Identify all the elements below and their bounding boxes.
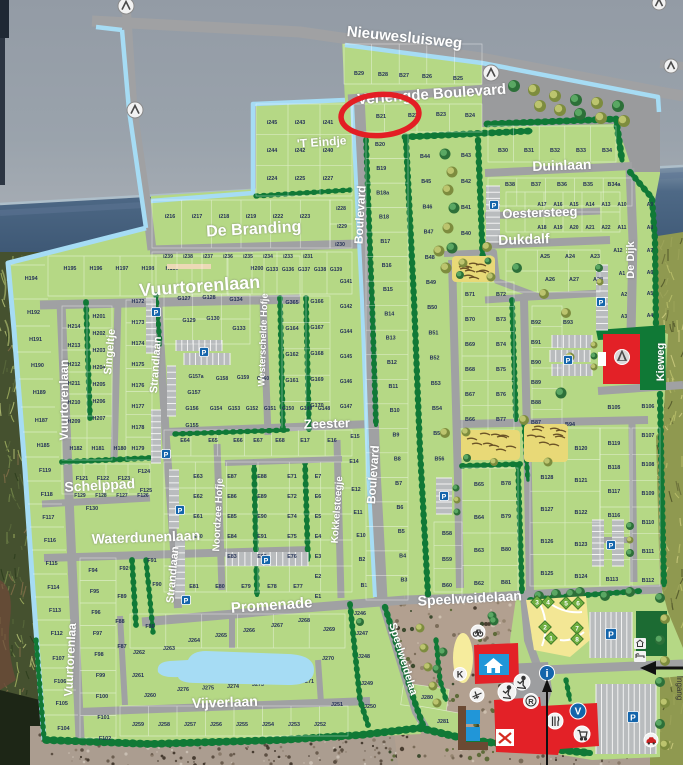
svg-text:G141: G141	[340, 279, 352, 285]
svg-text:F99: F99	[96, 673, 105, 679]
svg-text:B74: B74	[496, 342, 506, 348]
svg-text:B77: B77	[496, 417, 506, 423]
svg-text:J267: J267	[271, 623, 283, 629]
svg-text:H176: H176	[132, 383, 145, 389]
svg-text:B106: B106	[642, 404, 655, 410]
svg-text:i237: i237	[203, 254, 213, 260]
svg-text:B34a: B34a	[608, 182, 622, 188]
svg-text:E80: E80	[215, 584, 225, 590]
svg-text:H185: H185	[37, 443, 50, 449]
svg-text:J266: J266	[243, 628, 255, 634]
svg-text:J256: J256	[210, 722, 222, 728]
svg-text:H201: H201	[93, 314, 106, 320]
svg-text:P: P	[178, 508, 183, 515]
svg-text:B92: B92	[531, 320, 541, 326]
svg-text:A20: A20	[569, 225, 578, 231]
svg-text:B109: B109	[642, 491, 655, 497]
svg-text:B89: B89	[531, 380, 541, 386]
svg-text:G162: G162	[285, 352, 298, 358]
svg-text:i243: i243	[295, 120, 306, 126]
svg-text:B25: B25	[453, 76, 463, 82]
svg-text:G365: G365	[285, 300, 298, 306]
svg-text:H182: H182	[70, 446, 83, 452]
svg-text:3: 3	[535, 599, 539, 606]
svg-text:i240: i240	[323, 148, 334, 154]
svg-text:E78: E78	[267, 584, 277, 590]
svg-text:F92: F92	[119, 566, 128, 572]
svg-text:E85: E85	[227, 514, 237, 520]
svg-text:E16: E16	[327, 438, 337, 444]
svg-text:J247: J247	[356, 631, 368, 637]
svg-text:F116: F116	[44, 538, 56, 544]
svg-text:B58: B58	[442, 531, 452, 537]
svg-text:B108: B108	[642, 462, 655, 468]
svg-text:B42: B42	[461, 179, 471, 185]
svg-text:G133: G133	[266, 267, 278, 273]
svg-text:G169: G169	[310, 377, 323, 383]
svg-text:E5: E5	[315, 514, 322, 520]
svg-text:P: P	[609, 543, 614, 550]
svg-text:B35: B35	[583, 182, 593, 188]
svg-text:i245: i245	[267, 120, 278, 126]
svg-text:J268: J268	[298, 618, 310, 624]
svg-text:G156: G156	[185, 406, 198, 412]
svg-text:A21: A21	[585, 225, 594, 231]
svg-text:B23: B23	[436, 112, 446, 118]
svg-text:P: P	[202, 350, 207, 357]
svg-text:A8: A8	[647, 225, 654, 231]
svg-text:B112: B112	[642, 578, 655, 584]
svg-text:B47: B47	[424, 230, 434, 236]
svg-text:F95: F95	[90, 589, 99, 595]
svg-text:H191: H191	[29, 337, 42, 343]
svg-text:G139: G139	[330, 267, 342, 273]
svg-text:F124: F124	[138, 469, 150, 475]
svg-text:B65: B65	[474, 482, 484, 488]
svg-text:B52: B52	[430, 356, 440, 362]
svg-text:E88: E88	[257, 474, 267, 480]
svg-text:H196: H196	[90, 266, 103, 272]
svg-text:J265: J265	[215, 633, 227, 639]
svg-text:B70: B70	[465, 317, 475, 323]
svg-text:i216: i216	[165, 214, 176, 220]
svg-text:H179: H179	[132, 446, 145, 452]
svg-text:G128: G128	[202, 295, 215, 301]
svg-text:J246: J246	[354, 611, 366, 617]
svg-text:B128: B128	[541, 475, 554, 481]
svg-text:B78: B78	[501, 481, 511, 487]
svg-text:H175: H175	[132, 362, 145, 368]
svg-text:E64: E64	[180, 438, 190, 444]
svg-text:i228: i228	[336, 206, 346, 212]
svg-text:B53: B53	[431, 381, 441, 387]
svg-text:G159: G159	[237, 375, 249, 381]
svg-text:R: R	[528, 697, 534, 706]
svg-text:B11: B11	[389, 384, 399, 390]
svg-text:J257: J257	[184, 722, 196, 728]
svg-text:A14: A14	[585, 202, 594, 208]
svg-text:Kieweg: Kieweg	[655, 343, 667, 382]
svg-text:B80: B80	[501, 547, 511, 553]
svg-text:1: 1	[549, 635, 553, 642]
svg-text:B54: B54	[432, 406, 442, 412]
svg-text:G144: G144	[340, 329, 352, 335]
svg-text:J259: J259	[132, 722, 144, 728]
svg-text:E84: E84	[227, 534, 237, 540]
svg-text:H187: H187	[35, 418, 48, 424]
svg-text:B111: B111	[642, 549, 654, 555]
svg-text:B76: B76	[496, 392, 506, 398]
svg-text:H194: H194	[25, 276, 38, 282]
svg-text:K: K	[457, 670, 464, 680]
svg-text:A5: A5	[647, 291, 654, 297]
svg-text:J255: J255	[236, 722, 248, 728]
svg-text:B2: B2	[359, 557, 366, 563]
svg-text:B116: B116	[608, 513, 621, 519]
svg-text:E1: E1	[315, 594, 322, 600]
svg-text:B49: B49	[426, 280, 436, 286]
svg-text:J251: J251	[331, 702, 343, 708]
svg-text:E89: E89	[257, 494, 267, 500]
svg-text:B18: B18	[379, 215, 389, 221]
svg-text:G146: G146	[340, 379, 352, 385]
svg-text:B21: B21	[376, 114, 386, 120]
svg-text:B88: B88	[531, 400, 541, 406]
svg-text:B12: B12	[387, 360, 397, 366]
svg-text:B63: B63	[474, 548, 484, 554]
svg-text:J262: J262	[133, 650, 145, 656]
svg-text:Vijverlaan: Vijverlaan	[192, 693, 258, 711]
svg-text:E10: E10	[356, 533, 365, 539]
svg-text:B17: B17	[380, 239, 390, 245]
svg-text:J264: J264	[188, 638, 200, 644]
svg-text:F113: F113	[49, 608, 61, 614]
svg-text:B113: B113	[606, 577, 619, 583]
svg-text:J263: J263	[163, 646, 175, 652]
svg-text:Ingang: Ingang	[675, 676, 683, 700]
svg-text:H207: H207	[93, 416, 106, 422]
svg-text:E91: E91	[257, 534, 267, 540]
svg-text:E65: E65	[208, 438, 218, 444]
svg-text:i234: i234	[263, 254, 273, 260]
svg-text:B68: B68	[465, 367, 475, 373]
svg-text:F130: F130	[86, 506, 98, 512]
svg-text:E83: E83	[227, 554, 237, 560]
svg-text:F89: F89	[117, 594, 126, 600]
svg-text:B60: B60	[442, 583, 452, 589]
svg-text:A19: A19	[553, 225, 562, 231]
svg-text:B126: B126	[541, 539, 554, 545]
svg-text:B27: B27	[399, 73, 409, 79]
svg-text:i239: i239	[163, 254, 173, 260]
svg-text:A26: A26	[545, 277, 555, 283]
svg-text:B62: B62	[474, 581, 484, 587]
svg-text:G148: G148	[318, 406, 330, 412]
svg-text:G130: G130	[206, 316, 219, 322]
svg-text:B37: B37	[531, 182, 541, 188]
svg-text:A3: A3	[621, 314, 628, 320]
svg-text:i238: i238	[183, 254, 193, 260]
svg-text:G164: G164	[285, 326, 298, 332]
svg-text:E77: E77	[293, 584, 303, 590]
svg-text:P: P	[164, 452, 169, 459]
svg-text:F104: F104	[57, 726, 69, 732]
svg-text:Zeester: Zeester	[303, 415, 350, 432]
svg-text:E6: E6	[315, 494, 322, 500]
svg-text:F88: F88	[115, 619, 124, 625]
svg-text:6: 6	[576, 600, 580, 607]
svg-text:B73: B73	[496, 317, 506, 323]
svg-text:F128: F128	[95, 493, 107, 499]
svg-text:B81: B81	[501, 580, 511, 586]
svg-text:i244: i244	[267, 148, 278, 154]
svg-text:i230: i230	[335, 242, 345, 248]
svg-text:F98: F98	[94, 652, 103, 658]
svg-text:Duinlaan: Duinlaan	[532, 156, 592, 174]
svg-text:i: i	[545, 668, 548, 680]
svg-text:H189: H189	[33, 390, 46, 396]
svg-text:A22: A22	[601, 225, 610, 231]
svg-text:G168: G168	[310, 351, 323, 357]
svg-text:G167: G167	[310, 325, 323, 331]
svg-text:E79: E79	[241, 584, 251, 590]
svg-text:B46: B46	[422, 204, 432, 210]
svg-text:B67: B67	[465, 392, 475, 398]
svg-text:i217: i217	[192, 214, 203, 220]
svg-text:B18a: B18a	[376, 190, 390, 196]
svg-text:G154: G154	[210, 406, 222, 412]
svg-text:H198: H198	[142, 266, 155, 272]
svg-text:G150: G150	[282, 406, 294, 412]
svg-text:i231: i231	[303, 254, 313, 260]
svg-text:B36: B36	[557, 182, 567, 188]
svg-text:J248: J248	[358, 654, 370, 660]
svg-text:A9: A9	[647, 202, 654, 208]
svg-text:E71: E71	[287, 474, 297, 480]
svg-text:P: P	[442, 494, 447, 501]
svg-text:J270: J270	[322, 656, 334, 662]
svg-text:A11: A11	[618, 225, 627, 231]
svg-text:B118: B118	[608, 465, 621, 471]
svg-text:F119: F119	[39, 468, 51, 474]
svg-text:H206: H206	[93, 399, 106, 405]
svg-text:A7: A7	[647, 248, 654, 254]
svg-text:B13: B13	[386, 336, 396, 342]
svg-text:H174: H174	[132, 341, 145, 347]
svg-text:B105: B105	[608, 405, 621, 411]
svg-text:P: P	[154, 310, 159, 317]
svg-text:G145: G145	[340, 354, 352, 360]
svg-text:H180: H180	[114, 446, 127, 452]
svg-text:G149: G149	[300, 406, 312, 412]
svg-text:J280: J280	[421, 695, 433, 701]
svg-text:i233: i233	[283, 254, 293, 260]
svg-text:F101: F101	[97, 715, 109, 721]
svg-text:J276: J276	[177, 687, 189, 693]
svg-text:J252: J252	[314, 722, 326, 728]
svg-text:B8: B8	[394, 457, 401, 463]
svg-text:H202: H202	[93, 331, 106, 337]
svg-text:F114: F114	[47, 585, 59, 591]
svg-text:F91: F91	[147, 558, 156, 564]
svg-text:B10: B10	[390, 408, 400, 414]
svg-text:E74: E74	[287, 514, 297, 520]
svg-text:J281: J281	[437, 719, 449, 725]
svg-text:H178: H178	[132, 425, 145, 431]
svg-text:G161: G161	[285, 378, 298, 384]
svg-text:F96: F96	[91, 610, 100, 616]
svg-text:B31: B31	[524, 148, 534, 154]
svg-text:J261: J261	[132, 673, 144, 679]
svg-text:B40: B40	[461, 231, 471, 237]
svg-text:B79: B79	[501, 514, 511, 520]
svg-text:B9: B9	[393, 432, 400, 438]
svg-text:G152: G152	[246, 406, 258, 412]
svg-text:B45: B45	[421, 179, 431, 185]
svg-text:G137: G137	[298, 267, 310, 273]
svg-text:Vuurtorenlaan: Vuurtorenlaan	[57, 360, 71, 441]
svg-text:B119: B119	[608, 441, 621, 447]
svg-text:G138: G138	[314, 267, 326, 273]
svg-text:E72: E72	[287, 494, 297, 500]
svg-text:B29: B29	[354, 71, 364, 77]
svg-text:F86: F86	[145, 624, 154, 630]
svg-text:i229: i229	[337, 224, 347, 230]
svg-text:G133: G133	[232, 326, 245, 332]
svg-text:i223: i223	[300, 214, 311, 220]
svg-text:G136: G136	[282, 267, 294, 273]
svg-text:B24: B24	[465, 113, 475, 119]
svg-text:B4: B4	[399, 553, 406, 559]
svg-text:E66: E66	[233, 438, 243, 444]
svg-text:i224: i224	[267, 176, 278, 182]
svg-text:Oestersteeg: Oestersteeg	[502, 204, 578, 222]
svg-text:B38: B38	[505, 182, 515, 188]
svg-text:B7: B7	[395, 481, 402, 487]
svg-text:B20: B20	[375, 142, 385, 148]
svg-text:E68: E68	[275, 438, 285, 444]
svg-text:F112: F112	[51, 631, 63, 637]
svg-text:E12: E12	[351, 487, 360, 493]
svg-text:H197: H197	[116, 266, 129, 272]
svg-text:F94: F94	[88, 568, 97, 574]
svg-text:B1: B1	[361, 583, 368, 589]
svg-text:F102: F102	[99, 736, 111, 742]
svg-text:G157: G157	[187, 390, 200, 396]
svg-text:A12: A12	[613, 248, 622, 254]
svg-text:B51: B51	[428, 330, 438, 336]
svg-text:H177: H177	[132, 404, 145, 410]
svg-text:B6: B6	[397, 505, 404, 511]
svg-text:F97: F97	[93, 631, 102, 637]
svg-text:A2: A2	[621, 292, 628, 298]
svg-text:B64: B64	[474, 515, 484, 521]
svg-text:H214: H214	[68, 324, 81, 330]
svg-text:E17: E17	[300, 438, 310, 444]
svg-text:B34: B34	[602, 148, 612, 154]
svg-text:De Dijk: De Dijk	[625, 240, 637, 278]
svg-text:J274: J274	[227, 684, 239, 690]
svg-text:i218: i218	[219, 214, 230, 220]
svg-text:B122: B122	[575, 510, 588, 516]
svg-text:F115: F115	[46, 561, 58, 567]
svg-text:G158: G158	[216, 376, 228, 382]
svg-text:2: 2	[543, 624, 547, 631]
svg-text:B41: B41	[461, 205, 471, 211]
svg-text:B75: B75	[496, 367, 506, 373]
svg-text:H192: H192	[27, 310, 40, 316]
svg-text:A24: A24	[565, 254, 575, 260]
svg-text:J253: J253	[288, 722, 300, 728]
svg-text:i235: i235	[243, 254, 253, 260]
svg-text:E76: E76	[287, 554, 297, 560]
svg-text:E86: E86	[227, 494, 237, 500]
svg-text:E61: E61	[193, 514, 203, 520]
svg-text:P: P	[184, 598, 189, 605]
svg-text:B90: B90	[531, 360, 541, 366]
svg-text:E2: E2	[315, 574, 322, 580]
svg-text:H173: H173	[132, 320, 145, 326]
svg-text:A25: A25	[540, 254, 550, 260]
svg-text:B14: B14	[384, 311, 394, 317]
svg-text:E87: E87	[227, 474, 237, 480]
svg-text:B71: B71	[465, 292, 475, 298]
svg-text:J260: J260	[144, 693, 156, 699]
svg-text:E90: E90	[257, 514, 267, 520]
svg-text:A27: A27	[569, 277, 579, 283]
svg-text:P: P	[608, 630, 614, 640]
svg-text:B93: B93	[563, 320, 573, 326]
svg-text:i236: i236	[223, 254, 233, 260]
svg-text:G129: G129	[182, 318, 195, 324]
svg-text:B107: B107	[642, 433, 655, 439]
svg-text:F126: F126	[137, 493, 149, 499]
svg-text:G142: G142	[340, 304, 352, 310]
svg-text:B50: B50	[427, 305, 437, 311]
svg-text:E7: E7	[315, 474, 322, 480]
svg-text:i225: i225	[295, 176, 306, 182]
svg-text:P: P	[492, 203, 497, 210]
svg-text:i219: i219	[246, 214, 257, 220]
svg-text:B19: B19	[376, 166, 386, 172]
svg-text:J254: J254	[262, 722, 274, 728]
svg-text:B117: B117	[608, 489, 621, 495]
svg-text:B69: B69	[465, 342, 475, 348]
svg-text:B15: B15	[383, 287, 393, 293]
svg-text:B120: B120	[575, 446, 588, 452]
svg-text:B123: B123	[575, 542, 588, 548]
svg-text:E4: E4	[315, 534, 322, 540]
svg-text:G157a: G157a	[188, 374, 203, 380]
svg-text:B48: B48	[425, 255, 435, 261]
svg-text:E62: E62	[193, 494, 203, 500]
svg-text:F117: F117	[42, 515, 54, 521]
svg-text:J269: J269	[323, 627, 335, 633]
svg-text:B26: B26	[422, 74, 432, 80]
svg-text:A10: A10	[617, 202, 626, 208]
svg-text:E14: E14	[349, 459, 358, 465]
svg-text:P: P	[566, 358, 571, 365]
svg-text:E67: E67	[253, 438, 263, 444]
svg-text:B32: B32	[550, 148, 560, 154]
svg-text:B125: B125	[541, 571, 554, 577]
svg-text:P: P	[630, 713, 636, 723]
svg-text:H195: H195	[64, 266, 77, 272]
svg-text:G147: G147	[340, 404, 352, 410]
svg-text:B66: B66	[465, 417, 475, 423]
svg-text:E81: E81	[189, 584, 199, 590]
svg-text:G134: G134	[229, 297, 242, 303]
